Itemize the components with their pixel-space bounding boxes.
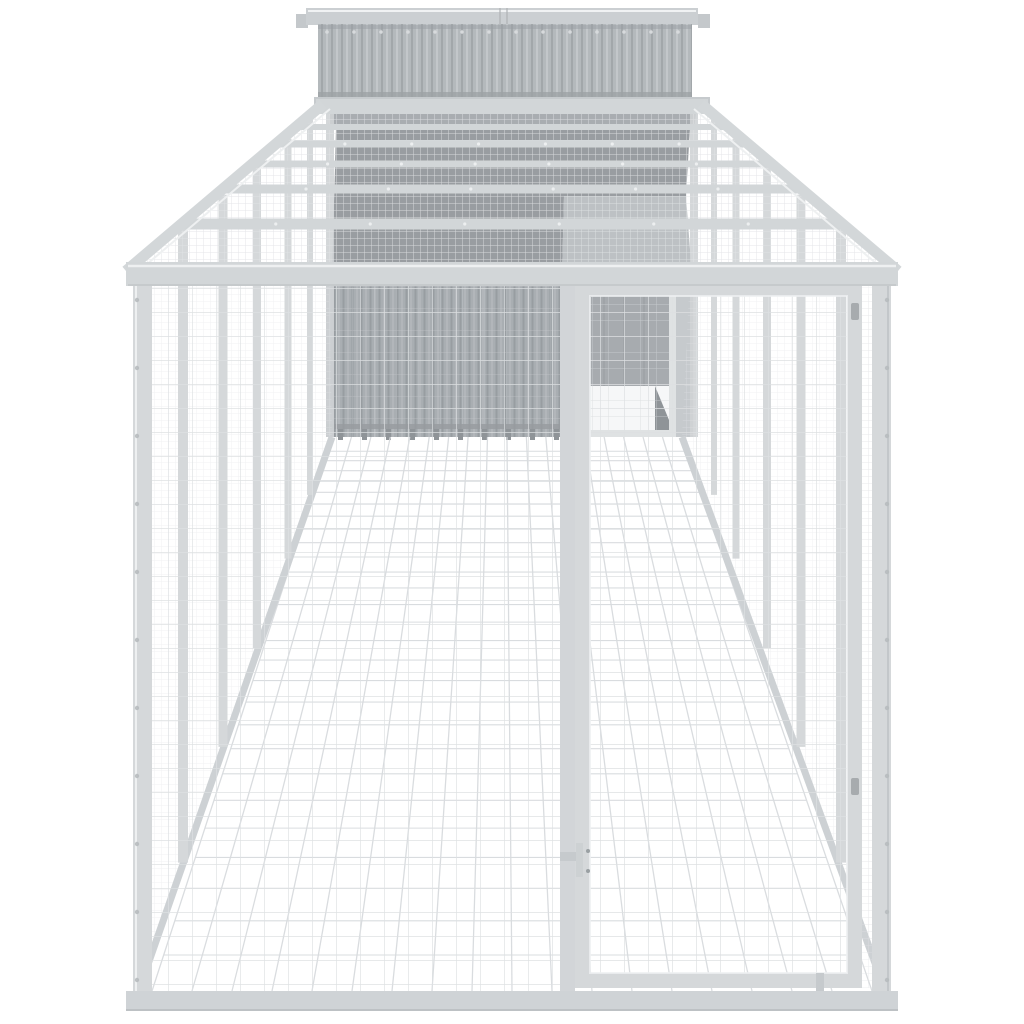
- door-latch-handle: [560, 852, 577, 861]
- front-bottom-rail: [126, 991, 898, 1011]
- clerestory-base-line: [318, 92, 692, 97]
- enclosure-illustration: [0, 0, 1024, 1024]
- product-photo: [0, 0, 1024, 1024]
- door-jamb-post: [560, 286, 575, 991]
- door-latch-plate: [576, 843, 583, 877]
- roof-cap-right-bracket: [698, 14, 710, 28]
- door-side-mesh-strip: [862, 296, 872, 988]
- door-hinge-bottom: [851, 778, 859, 795]
- roof-back-rail: [316, 99, 708, 110]
- clerestory-wall: [318, 24, 692, 97]
- latch-pin-bottom: [586, 869, 590, 873]
- front-face: [126, 262, 898, 1011]
- latch-pin-top: [586, 849, 590, 853]
- coop-house: [296, 8, 710, 97]
- door-hinge-top: [851, 303, 859, 320]
- front-door: [560, 281, 862, 1007]
- cap-shadow: [318, 25, 692, 29]
- front-mesh-panel: [152, 286, 560, 991]
- front-door-mesh: [590, 296, 847, 973]
